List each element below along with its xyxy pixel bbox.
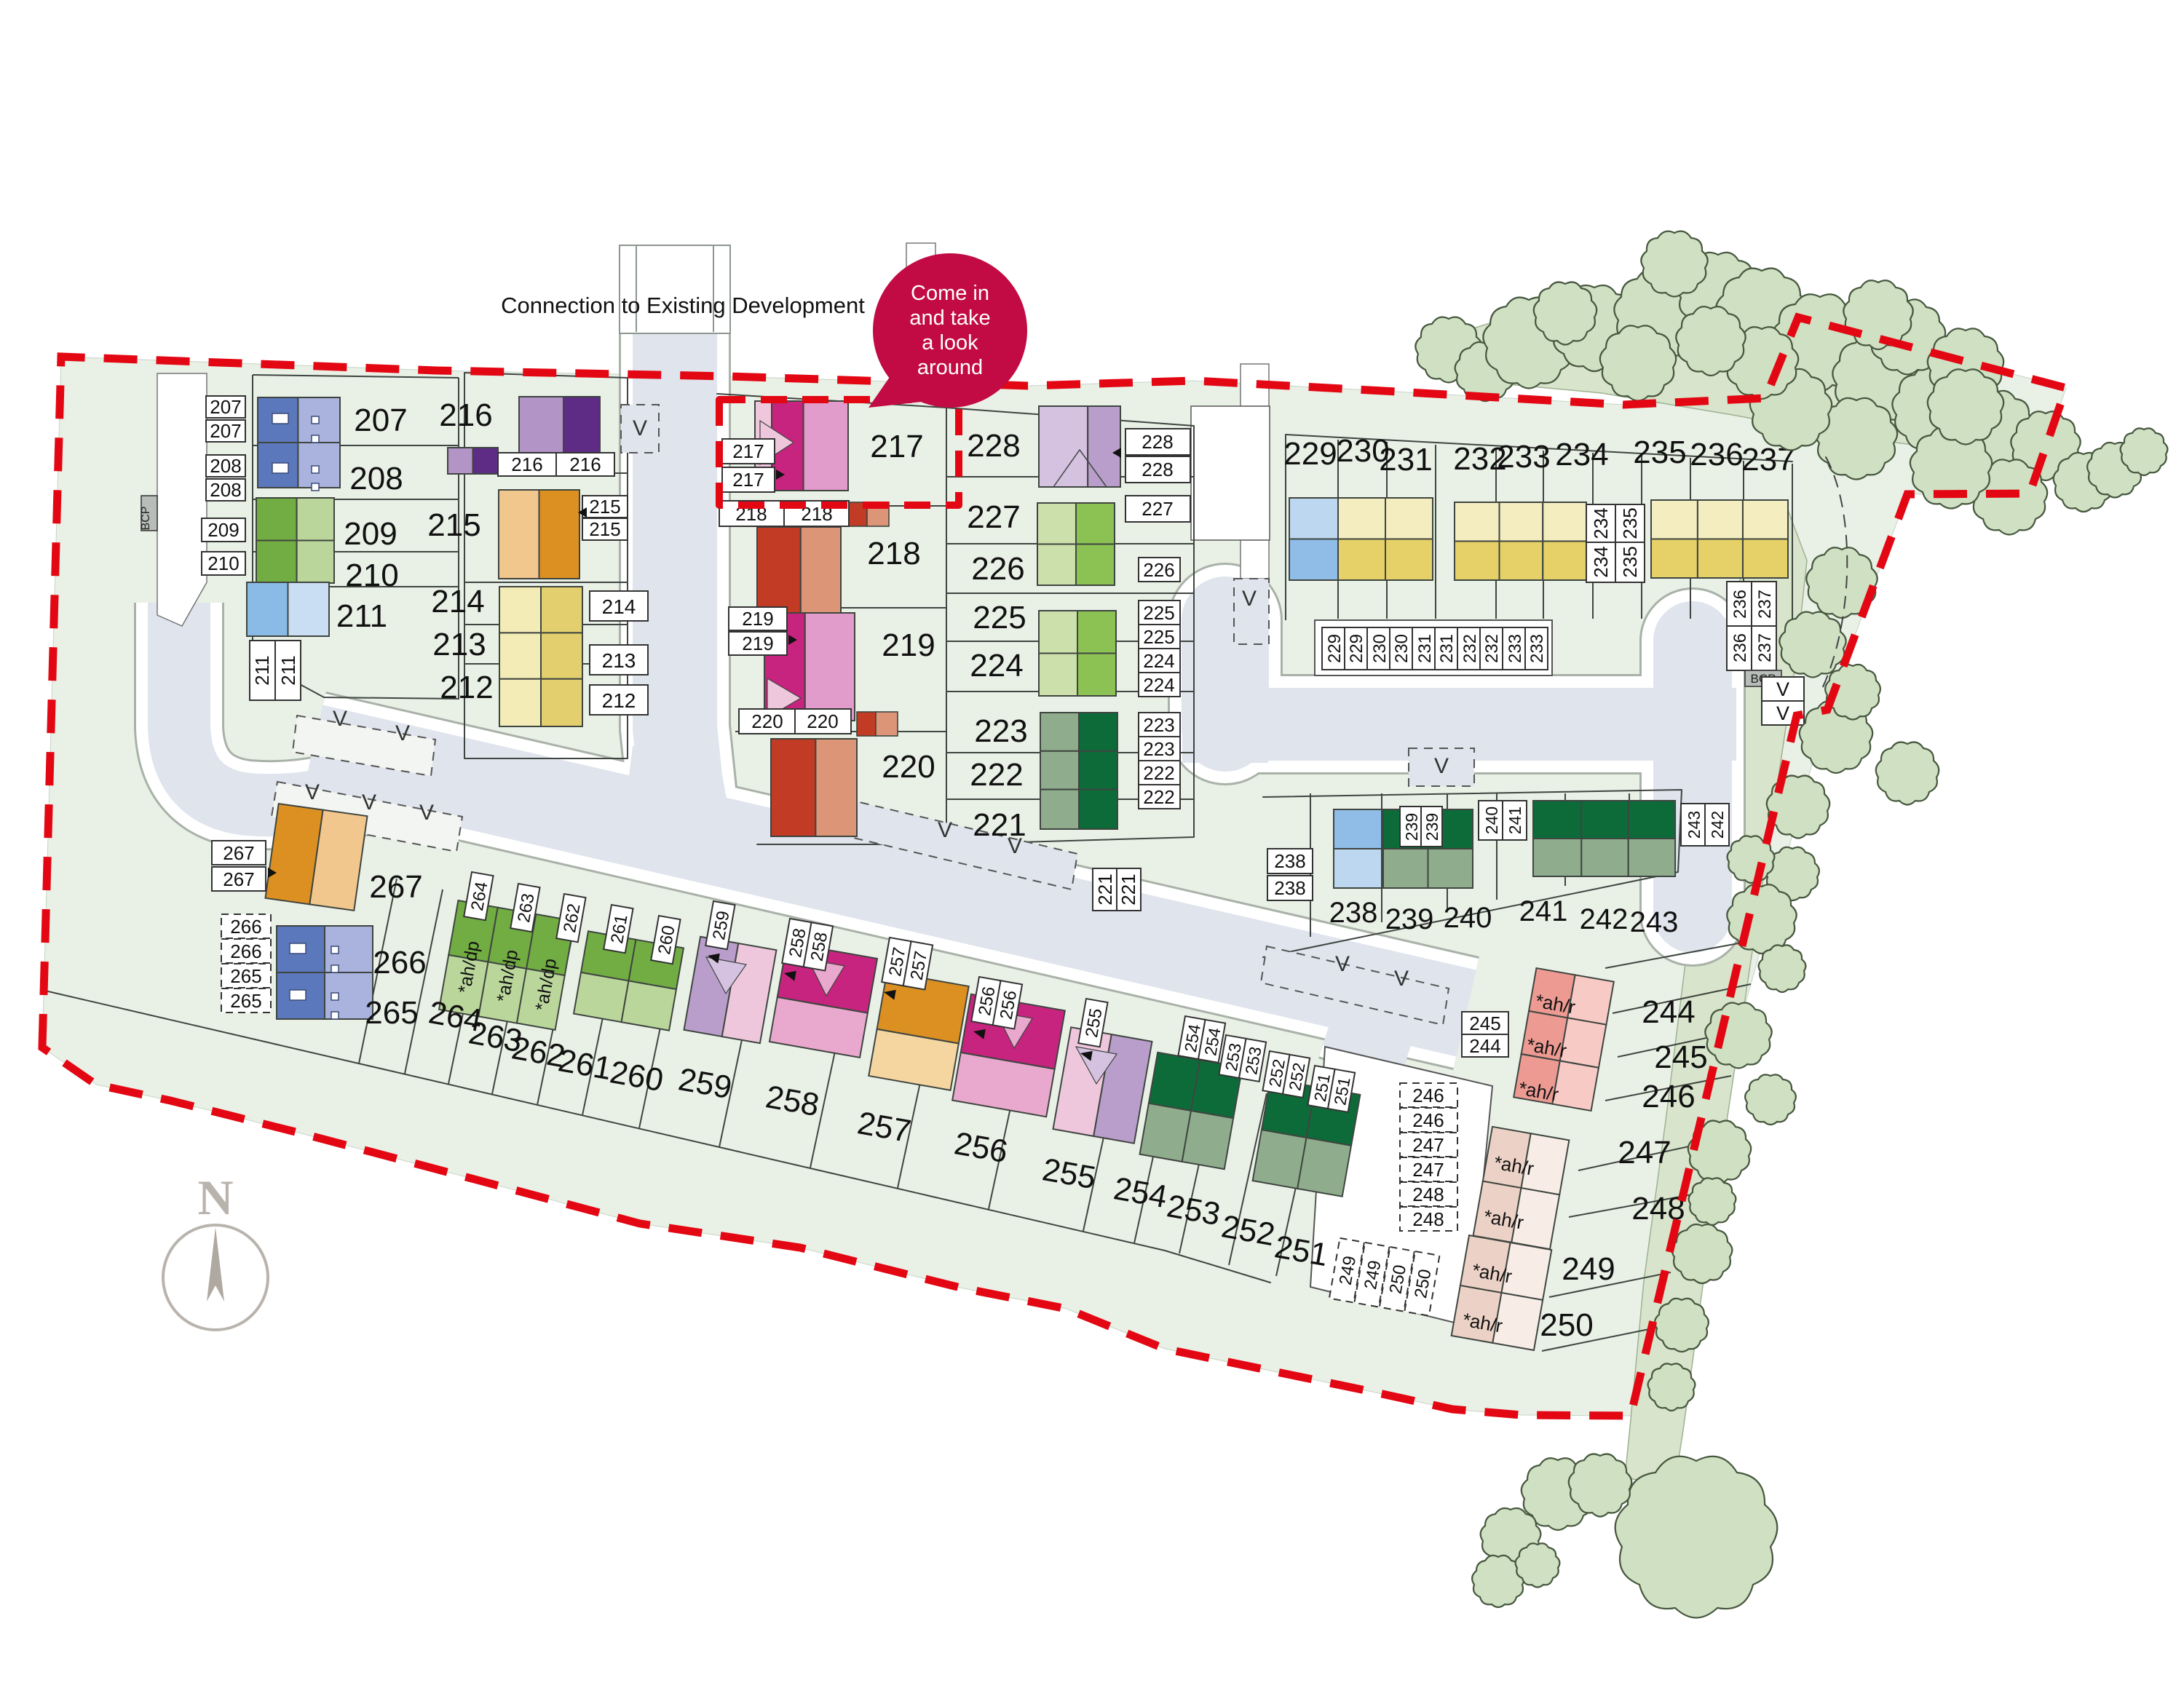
svg-text:244: 244 [1642, 994, 1695, 1030]
svg-text:V: V [1335, 952, 1350, 976]
svg-text:209: 209 [344, 516, 397, 552]
svg-text:247: 247 [1412, 1134, 1444, 1156]
svg-text:V: V [305, 780, 320, 804]
svg-text:211: 211 [336, 598, 387, 634]
svg-text:229: 229 [1283, 436, 1337, 472]
svg-text:V: V [395, 721, 410, 745]
svg-text:223: 223 [1143, 738, 1174, 760]
svg-text:221: 221 [1094, 873, 1116, 905]
svg-text:207: 207 [354, 403, 407, 438]
svg-text:241: 241 [1506, 807, 1524, 834]
svg-text:267: 267 [223, 868, 254, 890]
svg-text:234: 234 [1555, 437, 1608, 472]
svg-text:238: 238 [1274, 850, 1305, 872]
svg-text:V: V [1776, 702, 1789, 724]
svg-text:210: 210 [207, 552, 239, 574]
svg-text:230: 230 [1370, 634, 1390, 663]
svg-text:267: 267 [223, 842, 254, 864]
svg-text:215: 215 [427, 507, 480, 543]
svg-text:266: 266 [230, 940, 261, 962]
svg-text:246: 246 [1412, 1085, 1444, 1106]
svg-text:209: 209 [207, 519, 239, 541]
svg-text:231: 231 [1415, 634, 1435, 663]
svg-text:242: 242 [1580, 903, 1629, 935]
svg-text:224: 224 [970, 648, 1023, 683]
svg-text:221: 221 [973, 807, 1026, 843]
svg-text:231: 231 [1379, 442, 1432, 478]
svg-text:220: 220 [751, 710, 783, 732]
svg-text:229: 229 [1325, 634, 1345, 663]
svg-text:235: 235 [1619, 507, 1641, 539]
svg-text:221: 221 [1117, 873, 1139, 905]
svg-text:222: 222 [1143, 786, 1174, 808]
svg-text:217: 217 [732, 440, 764, 462]
svg-text:a look: a look [922, 331, 978, 354]
svg-text:239: 239 [1402, 813, 1421, 841]
svg-text:217: 217 [732, 469, 764, 491]
svg-text:266: 266 [373, 945, 426, 980]
svg-text:219: 219 [742, 633, 773, 654]
svg-text:232: 232 [1460, 634, 1480, 663]
svg-text:247: 247 [1412, 1159, 1444, 1181]
svg-text:V: V [1394, 967, 1409, 991]
svg-text:228: 228 [967, 428, 1020, 464]
svg-text:Connection to Existing Develop: Connection to Existing Development [501, 293, 865, 318]
svg-text:217: 217 [870, 429, 923, 464]
svg-text:243: 243 [1685, 811, 1704, 839]
svg-text:239: 239 [1385, 903, 1434, 935]
svg-text:246: 246 [1412, 1109, 1444, 1131]
svg-text:207: 207 [210, 420, 241, 442]
svg-text:223: 223 [1143, 714, 1174, 736]
svg-text:216: 216 [439, 397, 492, 433]
svg-text:266: 266 [230, 916, 261, 938]
svg-text:248: 248 [1412, 1208, 1444, 1230]
svg-text:207: 207 [210, 396, 241, 418]
svg-text:241: 241 [1519, 895, 1568, 927]
svg-text:265: 265 [230, 965, 261, 987]
svg-text:225: 225 [973, 600, 1026, 635]
svg-text:Come in: Come in [911, 282, 989, 305]
svg-text:226: 226 [1143, 559, 1174, 581]
svg-text:242: 242 [1708, 811, 1727, 839]
svg-text:229: 229 [1347, 634, 1366, 663]
svg-text:230: 230 [1392, 634, 1412, 663]
svg-text:BCP: BCP [140, 507, 152, 531]
svg-text:211: 211 [251, 655, 273, 685]
svg-text:V: V [1242, 587, 1257, 611]
svg-text:267: 267 [369, 869, 422, 905]
svg-text:V: V [333, 707, 347, 731]
svg-text:220: 220 [807, 710, 838, 732]
svg-text:216: 216 [569, 453, 601, 475]
svg-text:and take: and take [909, 306, 990, 330]
svg-text:208: 208 [210, 455, 241, 477]
svg-text:226: 226 [971, 551, 1024, 587]
svg-text:245: 245 [1469, 1013, 1500, 1034]
svg-text:224: 224 [1143, 650, 1174, 672]
svg-text:249: 249 [1562, 1251, 1615, 1287]
svg-text:233: 233 [1497, 439, 1550, 475]
svg-text:222: 222 [970, 757, 1023, 793]
svg-text:V: V [362, 790, 376, 815]
svg-text:219: 219 [742, 608, 773, 630]
svg-text:V: V [419, 801, 434, 825]
svg-text:214: 214 [431, 584, 484, 619]
svg-text:236: 236 [1730, 633, 1750, 662]
svg-text:218: 218 [867, 536, 920, 571]
svg-text:234: 234 [1590, 507, 1612, 539]
svg-text:215: 215 [589, 496, 620, 518]
svg-text:247: 247 [1618, 1135, 1671, 1170]
svg-text:227: 227 [967, 499, 1020, 535]
svg-text:237: 237 [1755, 590, 1775, 619]
svg-text:265: 265 [365, 995, 418, 1031]
svg-text:232: 232 [1482, 634, 1502, 663]
svg-text:225: 225 [1143, 602, 1174, 624]
svg-text:V: V [633, 416, 647, 440]
svg-text:243: 243 [1630, 906, 1679, 938]
svg-text:212: 212 [440, 670, 493, 705]
svg-text:220: 220 [882, 749, 935, 785]
svg-text:227: 227 [1142, 498, 1173, 520]
svg-text:225: 225 [1143, 626, 1174, 648]
svg-text:245: 245 [1654, 1039, 1707, 1075]
svg-text:233: 233 [1527, 634, 1547, 663]
svg-text:233: 233 [1506, 634, 1525, 663]
svg-text:240: 240 [1482, 807, 1501, 834]
svg-text:V: V [1776, 678, 1789, 700]
svg-text:V: V [1434, 754, 1449, 778]
svg-text:239: 239 [1423, 813, 1441, 841]
svg-text:213: 213 [432, 627, 486, 662]
svg-text:V: V [938, 818, 952, 842]
svg-text:213: 213 [602, 649, 636, 672]
svg-text:246: 246 [1642, 1079, 1695, 1114]
svg-text:223: 223 [974, 713, 1027, 749]
svg-text:265: 265 [230, 990, 261, 1012]
svg-text:228: 228 [1142, 431, 1173, 453]
svg-text:236: 236 [1690, 437, 1743, 472]
svg-text:212: 212 [602, 689, 636, 712]
svg-text:240: 240 [1444, 902, 1492, 934]
svg-text:238: 238 [1274, 877, 1305, 899]
svg-text:244: 244 [1469, 1035, 1500, 1057]
svg-text:216: 216 [511, 453, 542, 475]
svg-text:228: 228 [1142, 459, 1173, 480]
svg-text:around: around [917, 356, 983, 379]
svg-text:N: N [197, 1170, 233, 1225]
svg-text:222: 222 [1143, 762, 1174, 784]
svg-text:235: 235 [1633, 435, 1686, 470]
svg-text:231: 231 [1437, 634, 1457, 663]
svg-text:208: 208 [349, 461, 403, 496]
svg-text:248: 248 [1412, 1184, 1444, 1205]
svg-text:235: 235 [1619, 546, 1641, 577]
svg-text:210: 210 [345, 558, 398, 593]
svg-text:250: 250 [1540, 1307, 1593, 1343]
svg-text:219: 219 [882, 627, 935, 663]
svg-text:237: 237 [1755, 633, 1775, 662]
svg-text:238: 238 [1329, 897, 1378, 929]
svg-text:211: 211 [277, 655, 299, 685]
svg-text:208: 208 [210, 479, 241, 501]
svg-text:214: 214 [602, 595, 636, 618]
svg-text:234: 234 [1590, 546, 1612, 577]
svg-text:215: 215 [589, 518, 620, 540]
svg-text:224: 224 [1143, 674, 1174, 696]
svg-text:236: 236 [1730, 590, 1750, 619]
